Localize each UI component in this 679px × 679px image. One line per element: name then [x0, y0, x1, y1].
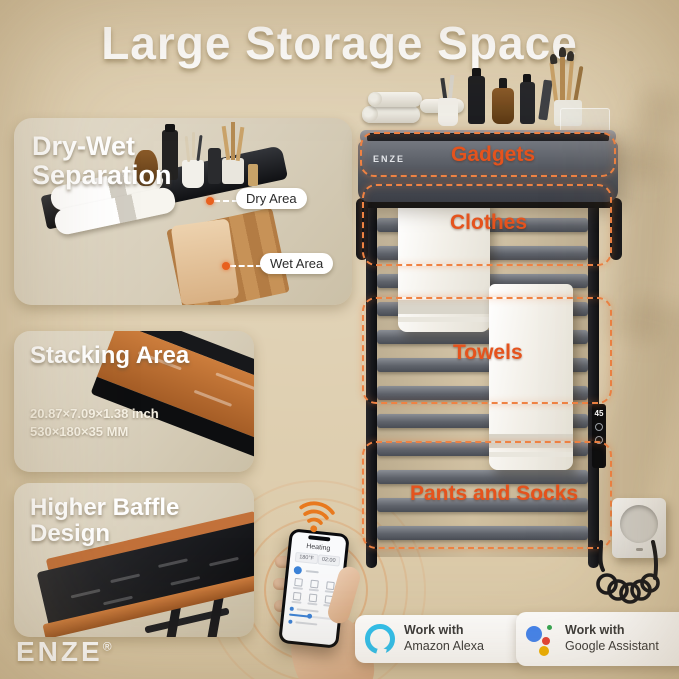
power-icon[interactable]	[595, 423, 603, 431]
pump-bottle-art	[468, 76, 485, 124]
dimensions-inch: 20.87×7.09×1.38 inch	[30, 405, 159, 423]
bottle-art	[492, 88, 514, 124]
alexa-badge-line2: Amazon Alexa	[404, 639, 484, 655]
google-assistant-badge: Work with Google Assistant	[516, 612, 679, 666]
brush-tip-art	[559, 47, 566, 57]
app-power-button[interactable]	[293, 566, 302, 575]
slot-art	[110, 573, 140, 583]
callout-label-towels: Towels	[453, 341, 523, 365]
temperature-display: 45	[592, 409, 606, 418]
pump-top-art	[165, 124, 175, 132]
app-mode-item[interactable]	[306, 593, 320, 605]
dry-area-label: Dry Area	[236, 188, 307, 209]
brand-name: ENZE	[16, 636, 103, 667]
callout-leader-line	[230, 265, 262, 267]
registered-mark: ®	[103, 640, 112, 654]
callout-dot	[222, 262, 230, 270]
alexa-badge: Work with Amazon Alexa	[355, 615, 525, 663]
wet-area-label: Wet Area	[260, 253, 333, 274]
pump-bottle-art	[520, 82, 535, 124]
google-badge-line2: Google Assistant	[565, 639, 659, 655]
temperature-chip[interactable]: 180°F	[295, 552, 319, 564]
slot-art	[71, 589, 101, 599]
google-badge-line1: Work with	[565, 623, 659, 639]
brand-logo: ENZE®	[16, 636, 112, 668]
coiled-power-cable	[583, 538, 673, 614]
hanging-towel-art	[171, 218, 240, 305]
cup-art	[438, 98, 458, 126]
callout-label-gadgets: Gadgets	[451, 143, 535, 167]
alexa-badge-line1: Work with	[404, 623, 484, 639]
product-infographic: Large Storage Space Dry-Wet Separation D…	[0, 0, 679, 679]
app-text-line	[306, 570, 319, 573]
app-mode-item[interactable]	[292, 578, 306, 590]
dimensions-mm: 530×180×35 MM	[30, 423, 159, 441]
callout-label-clothes: Clothes	[450, 211, 527, 235]
feature-panel-baffle: Higher Baffle Design	[14, 483, 254, 637]
app-mode-item[interactable]	[307, 579, 321, 591]
feature-panel-dry-wet: Dry-Wet Separation Dry Area Wet Area	[14, 118, 352, 305]
timer-chip[interactable]: 02:00	[317, 554, 340, 566]
panel-title-stacking: Stacking Area	[30, 343, 189, 369]
callout-leader-line	[214, 200, 238, 202]
wifi-icon	[290, 491, 343, 540]
callout-dot	[206, 197, 214, 205]
bottle-art	[248, 164, 258, 186]
feature-panel-stacking: Stacking Area 20.87×7.09×1.38 inch 530×1…	[14, 331, 254, 472]
brush-tip-art	[567, 51, 575, 62]
amazon-alexa-icon	[365, 624, 395, 654]
panel-title-dry-wet: Dry-Wet Separation	[32, 132, 232, 190]
grooming-tool-art	[538, 80, 552, 121]
page-title: Large Storage Space	[0, 16, 679, 70]
google-assistant-icon	[526, 621, 556, 657]
app-mode-item[interactable]	[290, 592, 304, 604]
stacking-dimensions: 20.87×7.09×1.38 inch 530×180×35 MM	[30, 405, 159, 440]
power-plug	[625, 509, 655, 539]
callout-label-pants: Pants and Socks	[410, 482, 578, 506]
panel-title-baffle: Higher Baffle Design	[30, 495, 210, 547]
slot-art	[158, 558, 188, 568]
slot-art	[170, 576, 200, 586]
slot-art	[209, 557, 239, 567]
makeup-brush-art	[560, 56, 565, 106]
rolled-towel-end-art	[362, 106, 378, 122]
rolled-towel-end-art	[368, 92, 382, 106]
app-setting-row[interactable]	[288, 620, 332, 629]
